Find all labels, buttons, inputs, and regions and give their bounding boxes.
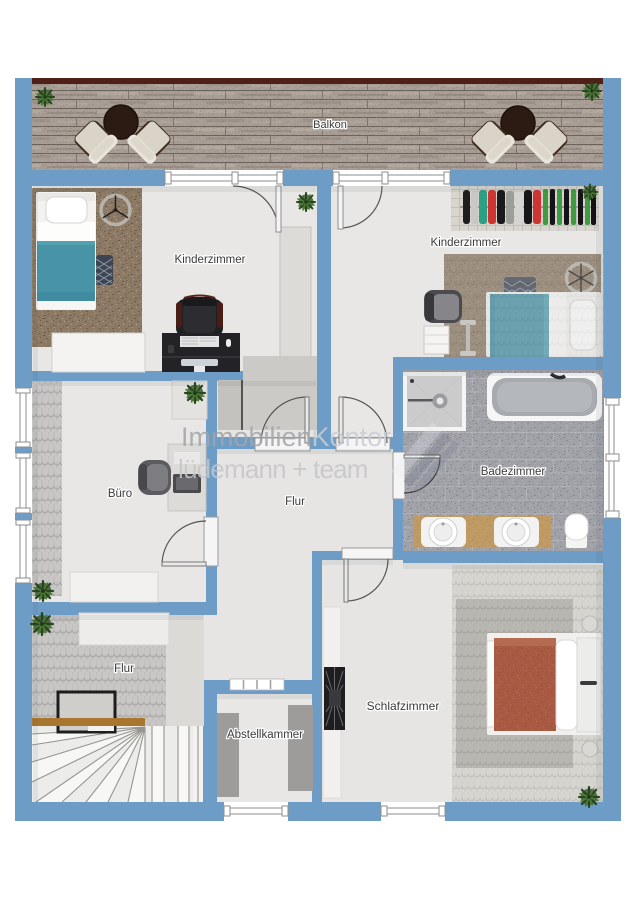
svg-text:Balkon: Balkon — [313, 119, 347, 131]
svg-text:lüdemann + team: lüdemann + team — [178, 454, 368, 484]
svg-text:Kinderzimmer: Kinderzimmer — [175, 254, 246, 266]
svg-text:Flur: Flur — [114, 663, 134, 675]
svg-text:Schlafzimmer: Schlafzimmer — [367, 699, 440, 713]
svg-text:Flur: Flur — [285, 496, 305, 508]
svg-text:Büro: Büro — [108, 488, 132, 500]
svg-text:Kinderzimmer: Kinderzimmer — [431, 237, 502, 249]
svg-text:Badezimmer: Badezimmer — [481, 466, 546, 478]
svg-text:Abstellkammer: Abstellkammer — [227, 729, 303, 741]
svg-text:ImmobilienKontor: ImmobilienKontor — [181, 422, 391, 452]
